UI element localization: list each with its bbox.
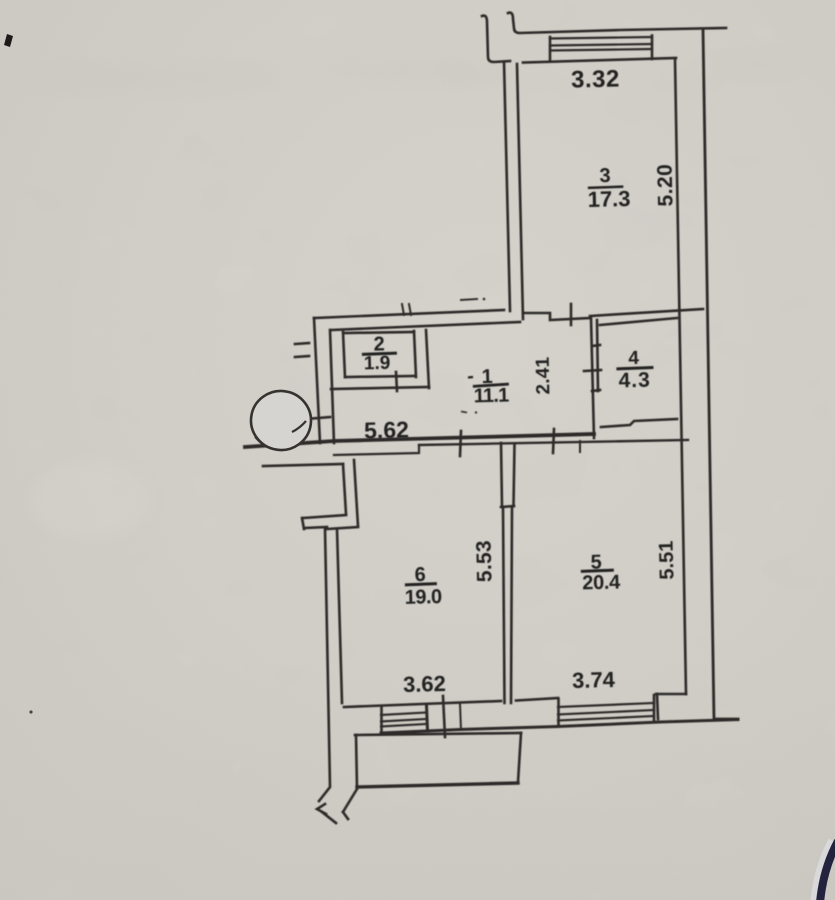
svg-text:3.62: 3.62 bbox=[403, 671, 446, 697]
svg-text:5.62: 5.62 bbox=[364, 416, 409, 443]
svg-text:20.4: 20.4 bbox=[582, 571, 621, 594]
svg-text:5.53: 5.53 bbox=[473, 540, 497, 583]
svg-text:2.41: 2.41 bbox=[533, 356, 555, 394]
svg-text:4.3: 4.3 bbox=[618, 369, 651, 393]
svg-text:4: 4 bbox=[628, 348, 639, 369]
svg-text:3.74: 3.74 bbox=[572, 667, 616, 693]
svg-text:3: 3 bbox=[599, 165, 611, 187]
svg-text:19.0: 19.0 bbox=[404, 586, 442, 609]
svg-text:17.3: 17.3 bbox=[587, 186, 630, 212]
svg-text:5.20: 5.20 bbox=[654, 163, 678, 206]
svg-text:1.9: 1.9 bbox=[364, 353, 391, 375]
svg-text:3.32: 3.32 bbox=[571, 65, 620, 93]
svg-text:5.51: 5.51 bbox=[656, 540, 679, 579]
svg-text:11.1: 11.1 bbox=[474, 385, 510, 408]
